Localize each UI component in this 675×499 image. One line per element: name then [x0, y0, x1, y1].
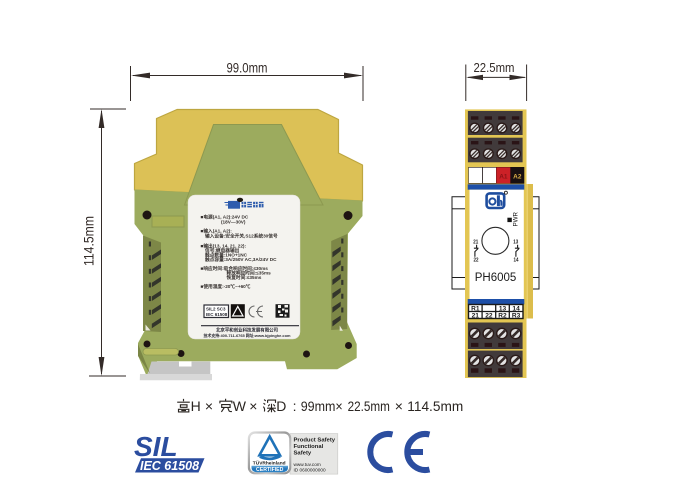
- svg-text:R2: R2: [498, 313, 507, 320]
- svg-text:R1: R1: [471, 306, 480, 313]
- svg-text:PWR: PWR: [513, 212, 520, 227]
- svg-text:14: 14: [512, 306, 520, 313]
- svg-text:×: ×: [205, 398, 213, 414]
- svg-text:21: 21: [473, 240, 478, 246]
- svg-text:114.5mm: 114.5mm: [407, 398, 463, 414]
- svg-text:触点容量:3A/250V AC,3A/24V DC: 触点容量:3A/250V AC,3A/24V DC: [205, 256, 277, 263]
- svg-text:21: 21: [472, 313, 480, 320]
- svg-text:SIL2 SC3: SIL2 SC3: [206, 307, 226, 312]
- svg-text:D: D: [276, 398, 286, 414]
- svg-text:14: 14: [514, 258, 519, 264]
- svg-text:×: ×: [249, 398, 257, 414]
- svg-text:IEC 61508: IEC 61508: [140, 459, 199, 473]
- svg-text:22: 22: [485, 313, 493, 320]
- svg-text:TÜVRheinland: TÜVRheinland: [253, 459, 286, 466]
- svg-text:×: ×: [395, 398, 403, 414]
- svg-text:PH6005: PH6005: [475, 272, 517, 284]
- svg-text:ID 0600000000: ID 0600000000: [294, 468, 326, 473]
- svg-text:99.0mm: 99.0mm: [227, 60, 268, 76]
- svg-text:恢复时间:≤35ms: 恢复时间:≤35ms: [227, 274, 262, 281]
- svg-text:22.5mm: 22.5mm: [348, 398, 390, 414]
- svg-text:W: W: [233, 398, 247, 414]
- svg-text:■使用温度:-20℃~+60℃: ■使用温度:-20℃~+60℃: [201, 283, 251, 290]
- svg-text::: :: [293, 398, 297, 414]
- svg-text:99mm×: 99mm×: [301, 398, 343, 414]
- svg-text:Safety: Safety: [294, 451, 312, 457]
- svg-text:IEC 61508: IEC 61508: [206, 312, 228, 317]
- svg-text:13: 13: [499, 306, 507, 313]
- svg-text:Functional: Functional: [294, 444, 324, 450]
- svg-text:R3: R3: [512, 313, 521, 320]
- svg-text:22.5mm: 22.5mm: [474, 60, 515, 75]
- svg-text:A2: A2: [513, 173, 522, 180]
- svg-text:www.tuv.com: www.tuv.com: [294, 462, 321, 467]
- svg-text:SIL: SIL: [134, 431, 178, 462]
- svg-text:(18V—30V): (18V—30V): [221, 219, 246, 224]
- svg-text:技术支持:400-711-6765 网址:www.bjpi: 技术支持:400-711-6765 网址:www.bjpinghe.com: [204, 332, 291, 338]
- svg-text:H: H: [191, 398, 201, 414]
- svg-text:Product Safety: Product Safety: [294, 438, 336, 444]
- svg-text:A1: A1: [499, 173, 508, 180]
- svg-text:114.5mm: 114.5mm: [82, 216, 97, 266]
- svg-text:输入设备:安全开关,S12系统30信号: 输入设备:安全开关,S12系统30信号: [205, 233, 278, 240]
- svg-text:CERTIFIED: CERTIFIED: [256, 467, 284, 473]
- svg-text:22: 22: [474, 258, 479, 264]
